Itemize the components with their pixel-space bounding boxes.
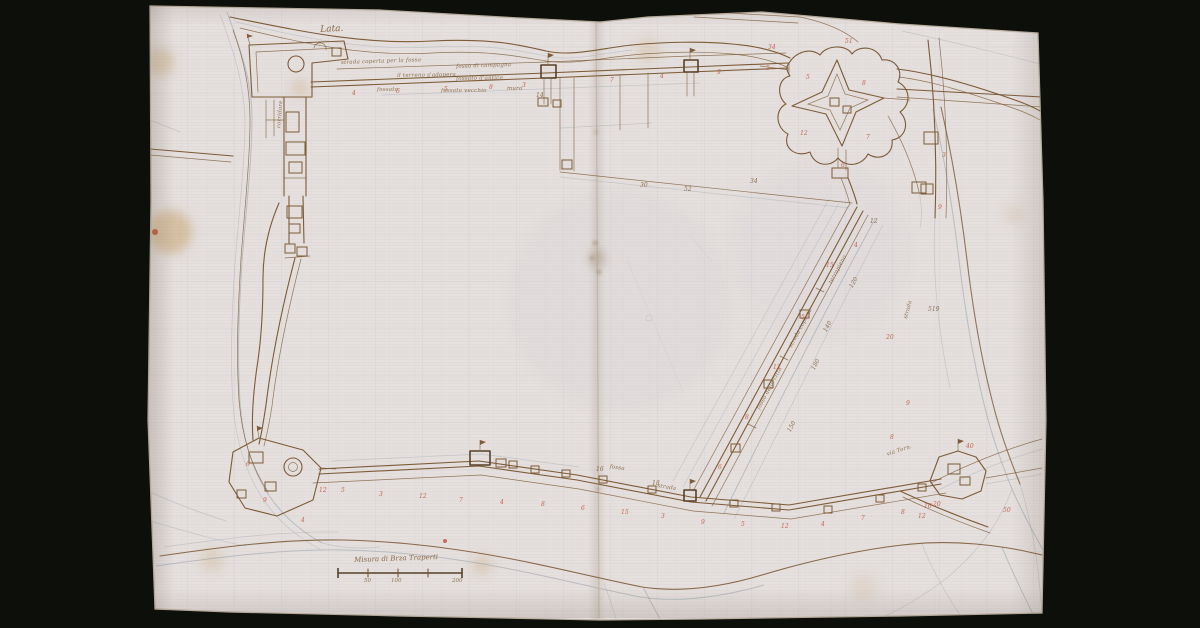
map-drawing — [0, 0, 1200, 628]
scanned-map-photo: Lata. Misura di Brza Traperti 50 100 200… — [0, 0, 1200, 628]
center-fold-line — [588, 0, 606, 628]
